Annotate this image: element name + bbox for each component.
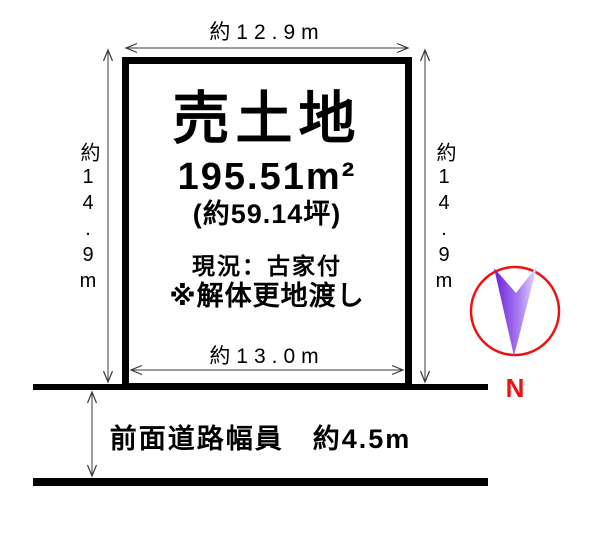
plot-title: 売土地 bbox=[129, 88, 405, 150]
plot-content: 売土地 195.51m² (約59.14坪) 現況：古家付 ※解体更地渡し bbox=[129, 64, 405, 312]
plot-area-tsubo: (約59.14坪) bbox=[129, 198, 405, 231]
road-lower-edge-line bbox=[33, 478, 488, 486]
left-dimension-label: 約14.9m bbox=[74, 142, 103, 296]
north-label: N bbox=[497, 373, 533, 404]
right-dimension-label: 約14.9m bbox=[430, 142, 459, 296]
bottom-dimension-label: 約13.0m bbox=[122, 340, 412, 370]
plot-status-current: 現況：古家付 bbox=[129, 253, 405, 280]
land-plot-diagram: 約12.9m 約14.9m 約14.9m 約13.0m 売土地 195.51m²… bbox=[0, 0, 600, 535]
top-dimension-label: 約12.9m bbox=[122, 16, 412, 46]
road-width-label: 前面道路幅員 約4.5m bbox=[33, 417, 488, 456]
road-upper-edge-line bbox=[33, 384, 488, 390]
north-arrow-icon bbox=[494, 266, 537, 356]
plot-area-sqm: 195.51m² bbox=[129, 156, 405, 198]
plot-status-note: ※解体更地渡し bbox=[129, 280, 405, 312]
